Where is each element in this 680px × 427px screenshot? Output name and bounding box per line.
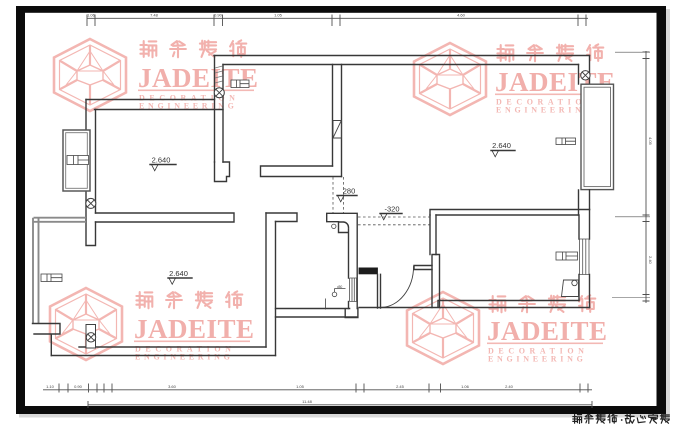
svg-text:2.40: 2.40: [648, 256, 653, 265]
svg-text:JADEITE: JADEITE: [487, 316, 608, 346]
svg-text:2.40: 2.40: [505, 384, 514, 389]
svg-text:-320: -320: [384, 205, 399, 214]
svg-text:1.10: 1.10: [46, 384, 55, 389]
svg-text:2.640: 2.640: [492, 141, 511, 150]
svg-text:2.640: 2.640: [169, 269, 188, 278]
svg-text:7.48: 7.48: [150, 13, 159, 18]
svg-text:1.06: 1.06: [461, 384, 470, 389]
svg-text:ENGINEERING: ENGINEERING: [488, 355, 587, 364]
svg-text:1.05: 1.05: [296, 384, 305, 389]
svg-text:ENGINEERING: ENGINEERING: [135, 353, 234, 362]
svg-text:2.45: 2.45: [396, 384, 405, 389]
svg-text:d50: d50: [337, 285, 343, 289]
svg-text:4.60: 4.60: [457, 13, 466, 18]
svg-text:1.05: 1.05: [274, 13, 283, 18]
svg-text:0.90: 0.90: [214, 13, 223, 18]
svg-text:11.48: 11.48: [302, 399, 312, 404]
svg-text:1.06: 1.06: [87, 13, 96, 18]
svg-text:JADEITE: JADEITE: [134, 314, 255, 344]
svg-text:0.90: 0.90: [74, 384, 83, 389]
svg-text:ENGINEERING: ENGINEERING: [496, 106, 595, 115]
svg-text:280: 280: [343, 187, 356, 196]
svg-text:2.640: 2.640: [152, 156, 171, 165]
svg-text:3.60: 3.60: [168, 384, 177, 389]
svg-text:4.05: 4.05: [648, 137, 653, 146]
svg-text:JADEITE: JADEITE: [138, 63, 259, 93]
